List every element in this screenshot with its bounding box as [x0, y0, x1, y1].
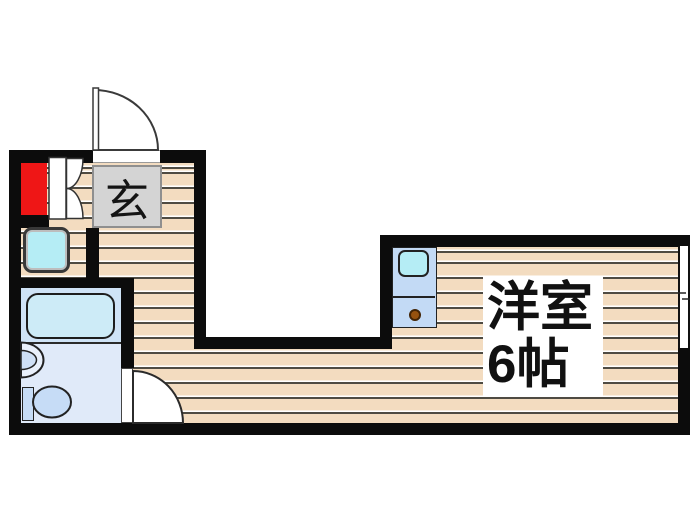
washing-machine-pan: [23, 227, 70, 273]
main-room-name: 洋室: [487, 279, 603, 336]
entry-door-swing: [94, 90, 158, 150]
main-room-size: 6帖: [487, 336, 603, 393]
wall-main-room-left: [380, 235, 392, 349]
bathtub: [26, 293, 115, 339]
genkan-area: 玄: [92, 165, 162, 228]
toilet-tank: [22, 387, 34, 421]
kitchen-sink: [398, 250, 429, 277]
wall-left: [9, 150, 21, 435]
wall-connector: [194, 337, 392, 349]
wall-bathroom-right: [121, 278, 134, 368]
bathroom-door-opening: [121, 368, 133, 423]
wall-bottom: [9, 423, 690, 435]
wall-bathroom-top: [21, 278, 133, 288]
genkan-label: 玄: [105, 165, 149, 229]
sliding-window: [678, 246, 690, 348]
kitchen-counter: [392, 247, 437, 328]
main-room-label: 洋室 6帖: [483, 276, 603, 396]
wall-left-unit-right: [194, 150, 206, 349]
bathroom-interior: [21, 288, 121, 423]
refrigerator-red-unit: [21, 163, 47, 215]
floor-corridor: [194, 349, 392, 423]
wall-main-room-top: [380, 235, 690, 247]
floor-plan: 玄 洋室 6帖: [0, 0, 700, 525]
entry-threshold: [93, 150, 160, 163]
entry-door-leaf: [93, 88, 99, 150]
